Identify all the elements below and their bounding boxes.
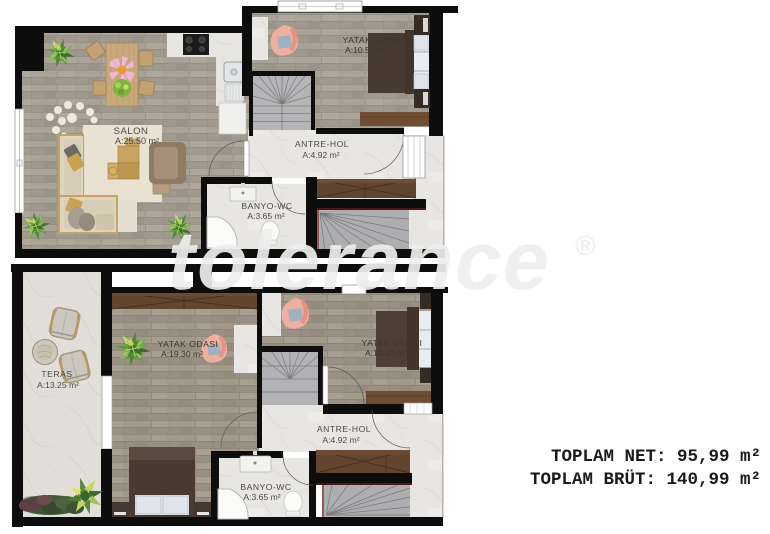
svg-text:TOPLAM BRÜT: 140,99 m²: TOPLAM BRÜT: 140,99 m² <box>530 469 761 490</box>
svg-text:A:19.30 m²: A:19.30 m² <box>161 349 203 359</box>
svg-text:TOPLAM NET: 95,99 m²: TOPLAM NET: 95,99 m² <box>551 447 761 467</box>
svg-text:tolerance: tolerance <box>161 214 560 307</box>
svg-text:A:3.65 m²: A:3.65 m² <box>243 492 280 502</box>
svg-text:®: ® <box>575 230 596 261</box>
svg-text:BANYO-WC: BANYO-WC <box>241 201 292 211</box>
svg-text:YATAK ODASI: YATAK ODASI <box>362 338 423 348</box>
svg-text:A:4.92 m²: A:4.92 m² <box>322 435 359 445</box>
svg-text:A:4.92 m²: A:4.92 m² <box>302 150 339 160</box>
svg-text:YATAK ODASI: YATAK ODASI <box>343 35 404 45</box>
svg-text:A:25.50 m²: A:25.50 m² <box>115 136 159 146</box>
svg-text:ANTRE-HOL: ANTRE-HOL <box>295 139 349 149</box>
svg-text:A:13.25 m²: A:13.25 m² <box>37 380 79 390</box>
svg-text:ANTRE-HOL: ANTRE-HOL <box>317 424 371 434</box>
svg-text:A:10.50 m²: A:10.50 m² <box>345 45 387 55</box>
svg-text:YATAK ODASI: YATAK ODASI <box>158 339 219 349</box>
svg-text:BANYO-WC: BANYO-WC <box>240 482 291 492</box>
svg-text:A:10.30 m²: A:10.30 m² <box>365 348 407 358</box>
svg-text:TERAS: TERAS <box>41 369 72 379</box>
